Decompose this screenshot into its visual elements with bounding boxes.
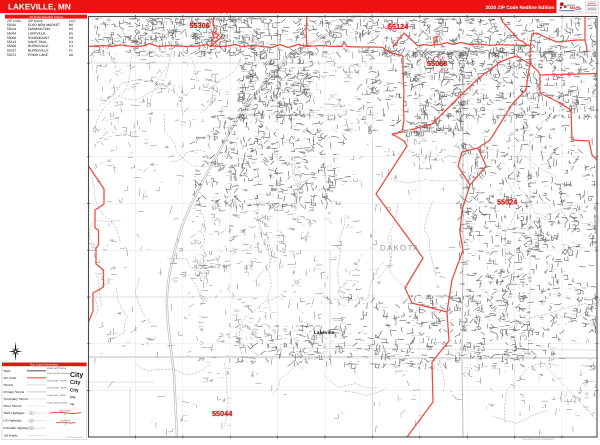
svg-text:Cities 25,000 - 49,999: Cities 25,000 - 49,999 [47,387,67,390]
svg-text:55124: 55124 [388,22,409,31]
svg-text:55372: 55372 [7,53,16,57]
svg-text:Cities 100,000 and Above: Cities 100,000 and Above [47,372,71,375]
svg-text:Cities and Towns: Cities and Towns [47,367,67,370]
svg-text:A6: A6 [69,53,73,57]
svg-text:City: City [70,371,83,379]
svg-text:©2020 MarketMAPS: ©2020 MarketMAPS [66,436,85,439]
svg-text:State Highways: State Highways [4,411,25,415]
svg-text:PRIOR LAKE: PRIOR LAKE [28,53,49,57]
svg-text:Secondary Streets: Secondary Streets [4,397,29,401]
svg-text:RESEARCH: RESEARCH [587,4,598,7]
svg-text:Kenrick: Kenrick [196,137,206,140]
svg-text:City: City [70,380,81,386]
svg-text:55044: 55044 [212,409,233,418]
svg-text:55306: 55306 [190,21,210,30]
svg-text:Toll Roads: Toll Roads [4,433,19,437]
svg-text:Cities 50,000 - 99,999: Cities 50,000 - 99,999 [47,379,67,382]
svg-text:State Routes: State Routes [59,409,71,412]
svg-text:55024: 55024 [497,198,518,207]
svg-text:US Highways: US Highways [4,419,23,423]
svg-text:US Routes: US Routes [61,419,71,422]
svg-text:LAKEVILLE, MN: LAKEVILLE, MN [8,3,71,12]
svg-text:Minor Streets: Minor Streets [4,404,22,408]
svg-text:Streets: Streets [4,383,14,387]
svg-text:ZIP Code Selection Criteria: ZIP Code Selection Criteria [29,15,63,19]
svg-text:City: City [70,395,76,399]
svg-text:Primary Streets: Primary Streets [4,390,25,394]
svg-text:ZIP Code: ZIP Code [4,376,17,380]
svg-text:Lakeville: Lakeville [314,330,335,336]
svg-text:State: State [4,369,11,373]
svg-text:Cities 5,000 - 24,999: Cities 5,000 - 24,999 [47,394,66,397]
svg-text:2020 ZIP Code Redline Edition: 2020 ZIP Code Redline Edition [486,5,555,11]
svg-text:Cities 1,000 and Below: Cities 1,000 and Below [47,402,68,405]
svg-text:55068: 55068 [427,59,447,68]
svg-text:DAKOTA: DAKOTA [380,244,420,253]
svg-text:City: City [70,403,75,406]
svg-text:City: City [70,387,79,392]
svg-text:Interstate Highways: Interstate Highways [4,426,31,430]
